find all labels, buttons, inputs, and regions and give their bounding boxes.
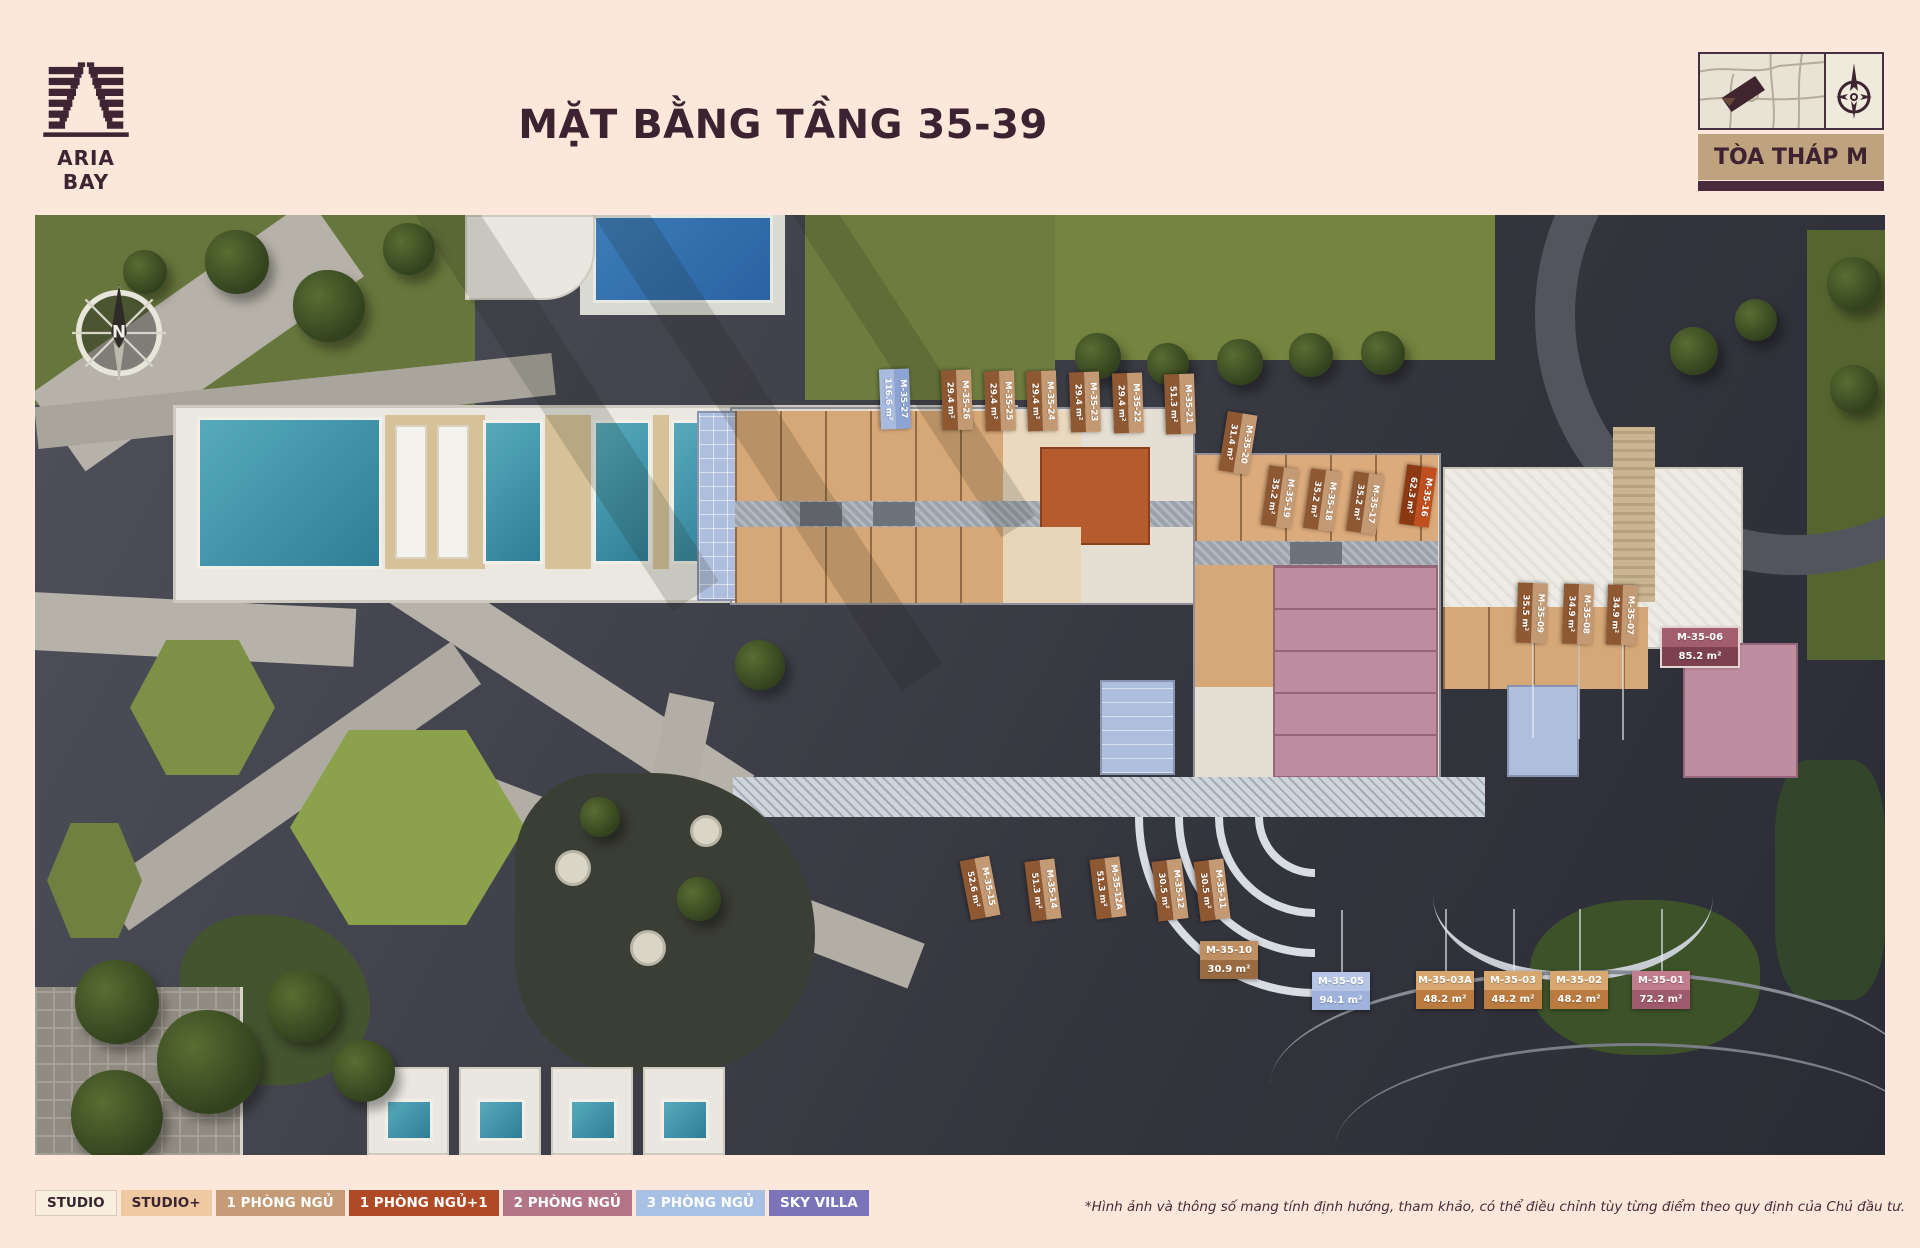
unit-label-m-35-03[interactable]: M-35-0348.2 m² (1484, 971, 1542, 1009)
unit-label-m-35-23[interactable]: M-35-2329.4 m² (1069, 371, 1101, 432)
cabana-unit (551, 1067, 633, 1155)
legend-item-3-ph-ng-ng-: 3 PHÒNG NGỦ (636, 1190, 765, 1216)
leader-line-m-35-01 (1661, 909, 1663, 971)
unit-id: M-35-27 (894, 368, 911, 428)
unit-area: 94.1 m² (1312, 991, 1370, 1010)
unit-area: 29.4 m² (1069, 372, 1086, 432)
unit-id: M-35-03A (1416, 971, 1474, 990)
umbrella (555, 850, 591, 886)
site-plan-canvas: N M-35-27116.6 m²M-35-2629.4 m²M-35-2529… (35, 215, 1885, 1155)
disclaimer-footnote: *Hình ảnh và thông số mang tính định hướ… (1085, 1199, 1905, 1215)
unit-label-m-35-05[interactable]: M-35-0594.1 m² (1312, 972, 1370, 1010)
unit-area: 29.4 m² (1026, 371, 1043, 431)
unit-label-m-35-09[interactable]: M-35-0935.5 m² (1516, 582, 1548, 643)
unit-label-m-35-08[interactable]: M-35-0834.9 m² (1562, 583, 1594, 644)
umbrella (630, 930, 666, 966)
unit-id: M-35-25 (999, 370, 1016, 430)
legend-item-studio-: STUDIO+ (121, 1190, 212, 1216)
unit-id: M-35-08 (1577, 584, 1594, 644)
tree (1217, 339, 1263, 385)
unit-label-m-35-03a[interactable]: M-35-03A48.2 m² (1416, 971, 1474, 1009)
unit-area: 48.2 m² (1550, 990, 1608, 1009)
compass-small-icon (1826, 54, 1882, 128)
unit-zone-3br-blue (1100, 680, 1175, 775)
umbrella (690, 815, 722, 847)
cabana-pool (661, 1099, 709, 1141)
unit-area: 48.2 m² (1416, 990, 1474, 1009)
unit-id: M-35-02 (1550, 971, 1608, 990)
legend-item-studio: STUDIO (35, 1190, 117, 1216)
tree (735, 640, 785, 690)
cabana-unit (459, 1067, 541, 1155)
travertine-wall (1613, 427, 1655, 602)
unit-label-m-35-26[interactable]: M-35-2629.4 m² (941, 369, 973, 430)
unit-type-legend: STUDIOSTUDIO+1 PHÒNG NGỦ1 PHÒNG NGỦ+12 P… (35, 1190, 869, 1216)
floorplan-page: { "header": { "brand": "ARIA BAY", "titl… (0, 0, 1920, 1248)
tree (1827, 257, 1881, 311)
unit-area: 34.9 m² (1562, 583, 1579, 643)
lawn-top-right (1055, 215, 1495, 360)
tower-badge[interactable]: TÒA THÁP M (1698, 134, 1884, 180)
unit-label-m-35-01[interactable]: M-35-0172.2 m² (1632, 971, 1690, 1009)
tree (1670, 327, 1718, 375)
tree (293, 270, 365, 342)
tree (1289, 333, 1333, 377)
tree (205, 230, 269, 294)
unit-area: 29.4 m² (941, 370, 958, 430)
elevator-core (1290, 542, 1342, 564)
leader-line-m-35-03a (1445, 909, 1447, 971)
unit-id: M-35-22 (1127, 372, 1144, 432)
plunge-pool (483, 420, 543, 564)
unit-id: M-35-07 (1621, 585, 1638, 645)
unit-area: 72.2 m² (1632, 990, 1690, 1009)
garden-patch (1775, 760, 1885, 1000)
leader-line-m-35-09 (1532, 643, 1534, 738)
unit-label-m-35-10[interactable]: M-35-1030.9 m² (1200, 941, 1258, 979)
tree (1735, 299, 1777, 341)
unit-id: M-35-21 (1179, 373, 1196, 433)
unit-area: 35.5 m² (1516, 582, 1533, 642)
unit-area: 29.4 m² (1112, 373, 1129, 433)
unit-area: 51.3 m² (1164, 374, 1181, 434)
locator-box (1698, 52, 1884, 130)
tree (333, 1040, 395, 1102)
tree (677, 877, 721, 921)
unit-id: M-35-26 (956, 369, 973, 429)
unit-id: M-35-03 (1484, 971, 1542, 990)
unit-id: M-35-05 (1312, 972, 1370, 991)
tree (267, 970, 339, 1042)
tower-badge-underline (1698, 181, 1884, 191)
legend-item-2-ph-ng-ng-: 2 PHÒNG NGỦ (503, 1190, 632, 1216)
cabana-pool (385, 1099, 433, 1141)
unit-zone-2br-mauve (1273, 565, 1438, 780)
unit-id: M-35-06 (1662, 628, 1738, 647)
unit-area: 29.4 m² (984, 371, 1001, 431)
cabana-pool (477, 1099, 525, 1141)
brand-name: ARIA BAY (36, 146, 136, 194)
legend-item-sky-villa: SKY VILLA (769, 1190, 869, 1216)
unit-label-m-35-07[interactable]: M-35-0734.9 m² (1606, 584, 1638, 645)
cabana-pool (569, 1099, 617, 1141)
tree (157, 1010, 261, 1114)
site-locator-map-icon[interactable] (1700, 54, 1826, 128)
unit-id: M-35-01 (1632, 971, 1690, 990)
unit-area: 85.2 m² (1662, 647, 1738, 666)
unit-area: 116.6 m² (879, 369, 896, 429)
unit-label-m-35-27[interactable]: M-35-27116.6 m² (879, 368, 911, 429)
page-title: MẶT BẰNG TẦNG 35-39 (0, 102, 1566, 148)
leader-line-m-35-03 (1513, 909, 1515, 971)
unit-label-m-35-06[interactable]: M-35-0685.2 m² (1662, 628, 1738, 666)
cabana-unit (643, 1067, 725, 1155)
leader-line-m-35-07 (1622, 645, 1624, 740)
lap-pool (197, 417, 382, 569)
tree (71, 1070, 163, 1155)
unit-zone-tan (1195, 565, 1273, 687)
unit-label-m-35-02[interactable]: M-35-0248.2 m² (1550, 971, 1608, 1009)
unit-area: 34.9 m² (1606, 584, 1623, 644)
leader-line-m-35-02 (1579, 909, 1581, 971)
unit-label-m-35-25[interactable]: M-35-2529.4 m² (984, 370, 1016, 431)
leader-line-m-35-08 (1578, 644, 1580, 739)
tree (75, 960, 159, 1044)
unit-area: 30.9 m² (1200, 960, 1258, 979)
unit-label-m-35-22[interactable]: M-35-2229.4 m² (1112, 372, 1144, 433)
unit-id: M-35-10 (1200, 941, 1258, 960)
unit-id: M-35-24 (1041, 370, 1058, 430)
unit-id: M-35-09 (1531, 583, 1548, 643)
unit-zone-3br-blue (1507, 685, 1579, 777)
rock-garden (515, 773, 815, 1073)
cabana (395, 425, 427, 559)
unit-label-m-35-21[interactable]: M-35-2151.3 m² (1164, 373, 1196, 434)
terrace-steps (965, 817, 1315, 1002)
tree (580, 797, 620, 837)
tree (1830, 365, 1878, 413)
unit-id: M-35-23 (1084, 371, 1101, 431)
tree (1361, 331, 1405, 375)
legend-item-1-ph-ng-ng-1: 1 PHÒNG NGỦ+1 (349, 1190, 499, 1216)
cabana (437, 425, 469, 559)
unit-label-m-35-24[interactable]: M-35-2429.4 m² (1026, 370, 1058, 431)
svg-text:N: N (112, 321, 126, 341)
elevator-core (873, 502, 915, 526)
unit-area: 48.2 m² (1484, 990, 1542, 1009)
leader-line-m-35-05 (1341, 910, 1343, 972)
unit-zone-cream (1003, 527, 1081, 603)
step-arc (1433, 811, 1713, 981)
legend-item-1-ph-ng-ng-: 1 PHÒNG NGỦ (216, 1190, 345, 1216)
hatched-walkway (733, 777, 1485, 817)
compass-rose-icon: N (63, 277, 175, 389)
